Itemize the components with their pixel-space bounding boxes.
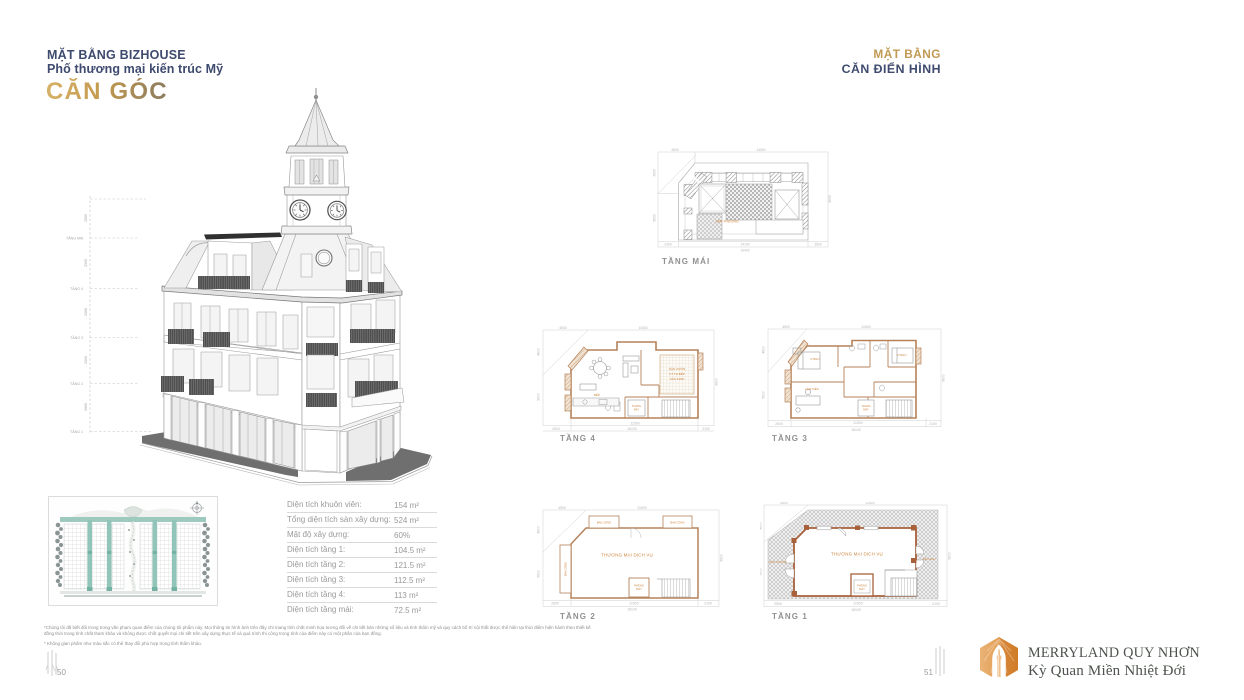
svg-text:SÂN THƯỢNG: SÂN THƯỢNG [715, 220, 739, 224]
svg-text:9600: 9600 [720, 554, 724, 562]
svg-text:MÁY: MÁY [634, 408, 640, 412]
svg-text:2500: 2500 [814, 243, 822, 247]
svg-text:4600: 4600 [653, 169, 657, 177]
svg-text:4500: 4500 [782, 325, 790, 329]
svg-text:2500: 2500 [551, 602, 559, 606]
svg-text:9600: 9600 [828, 195, 832, 203]
svg-text:SÂN VƯỜN: SÂN VƯỜN [669, 366, 685, 371]
svg-text:11500: 11500 [637, 506, 646, 510]
svg-text:3300: 3300 [84, 259, 88, 267]
svg-text:P.NGỦ: P.NGỦ [810, 356, 819, 361]
svg-text:11500: 11500 [630, 422, 639, 426]
svg-text:2100: 2100 [702, 427, 710, 431]
svg-text:9600: 9600 [948, 552, 952, 560]
svg-text:4600: 4600 [762, 346, 766, 354]
svg-text:5600: 5600 [653, 214, 657, 222]
svg-text:SÂN TRƯỚC: SÂN TRƯỚC [769, 559, 788, 564]
svg-text:P.NGỦ: P.NGỦ [897, 352, 906, 357]
svg-text:16100: 16100 [851, 608, 861, 612]
svg-text:4500: 4500 [559, 326, 567, 330]
svg-text:16100: 16100 [851, 428, 861, 432]
svg-text:TẦNG 2: TẦNG 2 [70, 382, 83, 386]
svg-text:5600: 5600 [537, 393, 541, 401]
svg-text:KT TH.BẾP: KT TH.BẾP [669, 371, 684, 376]
svg-text:4500: 4500 [780, 502, 788, 505]
svg-text:THƯƠNG MẠI DỊCH VỤ: THƯƠNG MẠI DỊCH VỤ [601, 553, 653, 558]
svg-text:TẦNG MÁI: TẦNG MÁI [66, 237, 83, 241]
svg-text:16100: 16100 [627, 427, 637, 431]
svg-text:11500: 11500 [861, 325, 870, 329]
svg-text:16100: 16100 [627, 608, 637, 612]
svg-text:2100: 2100 [704, 602, 712, 606]
svg-text:11500: 11500 [638, 326, 647, 330]
svg-text:MÁY: MÁY [863, 408, 869, 412]
svg-text:4600: 4600 [537, 526, 541, 534]
svg-text:BẾP: BẾP [594, 392, 600, 397]
svg-text:MÁY: MÁY [859, 587, 865, 591]
svg-text:16400: 16400 [740, 249, 749, 253]
svg-text:5600: 5600 [537, 570, 541, 578]
svg-text:4600: 4600 [760, 522, 763, 530]
svg-text:9600: 9600 [715, 378, 719, 386]
svg-text:11500: 11500 [853, 602, 862, 606]
svg-text:2100: 2100 [932, 602, 940, 606]
svg-text:11500: 11500 [629, 602, 638, 606]
svg-text:2500: 2500 [775, 422, 783, 426]
svg-text:THANG: THANG [861, 404, 870, 408]
svg-text:11500: 11500 [865, 502, 874, 505]
svg-text:4500: 4500 [671, 148, 679, 152]
svg-text:SÂN SAU: SÂN SAU [922, 556, 935, 561]
svg-text:3300: 3300 [84, 356, 88, 364]
svg-text:3360: 3360 [84, 308, 88, 316]
svg-text:TẦNG 3: TẦNG 3 [70, 336, 83, 340]
svg-text:2100: 2100 [929, 422, 937, 426]
svg-text:5600: 5600 [760, 568, 763, 576]
svg-text:3960: 3960 [84, 403, 88, 411]
svg-text:4500: 4500 [558, 506, 566, 510]
svg-text:TẦNG 4: TẦNG 4 [70, 287, 83, 291]
svg-text:2500: 2500 [774, 602, 782, 606]
svg-text:11500: 11500 [853, 421, 862, 425]
svg-text:5600: 5600 [762, 391, 766, 399]
svg-text:SÂN PHƠI: SÂN PHƠI [670, 376, 685, 381]
svg-text:2300: 2300 [664, 243, 672, 247]
svg-text:4600: 4600 [537, 348, 541, 356]
svg-text:14500: 14500 [756, 148, 765, 152]
svg-text:THƯƠNG MẠI DỊCH VỤ: THƯƠNG MẠI DỊCH VỤ [831, 552, 883, 557]
svg-text:14100: 14100 [740, 243, 749, 247]
svg-text:2500: 2500 [552, 427, 560, 431]
svg-text:2500: 2500 [84, 214, 88, 222]
svg-text:THANG: THANG [632, 404, 641, 408]
svg-text:9600: 9600 [942, 374, 946, 382]
svg-text:LÀM VIỆC: LÀM VIỆC [805, 386, 820, 391]
svg-text:TẦNG 1: TẦNG 1 [70, 430, 83, 434]
svg-text:MÁY: MÁY [636, 587, 642, 591]
